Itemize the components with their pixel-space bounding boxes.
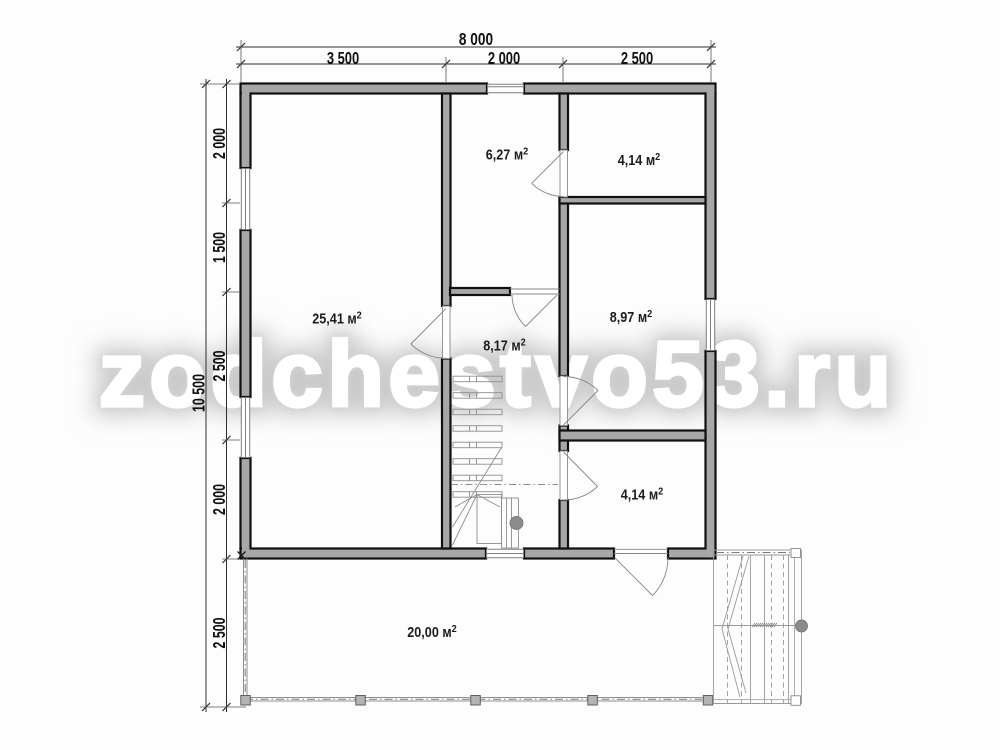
svg-text:25,41 м2: 25,41 м2 [312, 310, 362, 327]
svg-text:8,97 м2: 8,97 м2 [610, 308, 653, 325]
svg-text:2 500: 2 500 [621, 49, 653, 68]
svg-text:4,14 м2: 4,14 м2 [618, 151, 661, 168]
svg-text:2 500: 2 500 [210, 617, 230, 648]
svg-text:2 000: 2 000 [210, 128, 230, 159]
svg-text:10 500: 10 500 [190, 374, 210, 412]
svg-text:2 000: 2 000 [210, 484, 230, 515]
svg-text:2 000: 2 000 [488, 49, 520, 68]
svg-text:8,17 м2: 8,17 м2 [483, 337, 526, 354]
svg-text:3 500: 3 500 [327, 49, 359, 68]
svg-text:4,14 м2: 4,14 м2 [621, 486, 664, 503]
svg-text:1 500: 1 500 [210, 232, 230, 263]
svg-text:2 500: 2 500 [210, 350, 230, 381]
svg-text:6,27 м2: 6,27 м2 [486, 146, 529, 163]
svg-text:8 000: 8 000 [459, 31, 493, 50]
svg-text:20,00 м2: 20,00 м2 [407, 623, 457, 640]
